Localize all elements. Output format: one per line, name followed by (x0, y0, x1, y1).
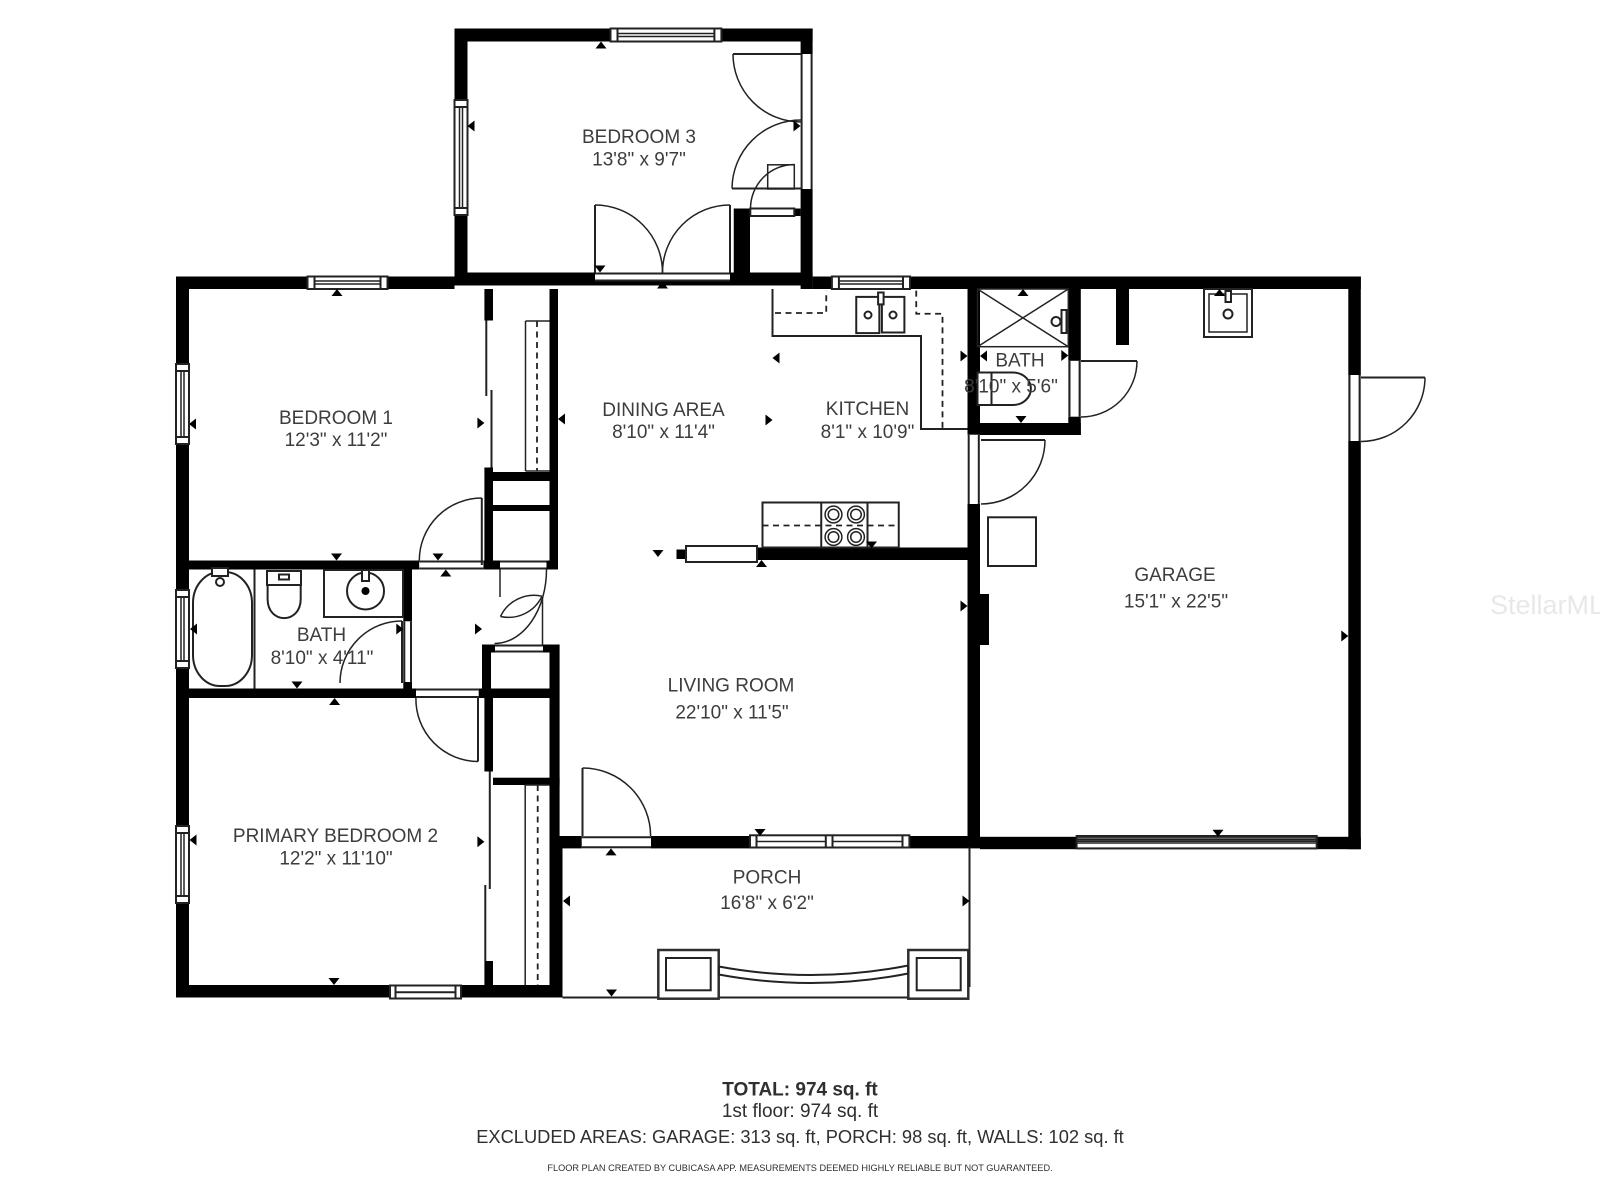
svg-text:FLOOR PLAN CREATED BY CUBICASA: FLOOR PLAN CREATED BY CUBICASA APP. MEAS… (547, 1163, 1052, 1173)
svg-text:TOTAL: 974 sq. ft: TOTAL: 974 sq. ft (722, 1080, 878, 1101)
svg-text:BATH: BATH (995, 351, 1044, 372)
svg-text:22'10" x 11'5": 22'10" x 11'5" (675, 703, 788, 724)
svg-text:8'10" x 11'4": 8'10" x 11'4" (612, 422, 715, 443)
svg-text:LIVING ROOM: LIVING ROOM (668, 676, 795, 697)
svg-text:KITCHEN: KITCHEN (826, 399, 909, 420)
svg-text:12'3" x 11'2": 12'3" x 11'2" (285, 430, 388, 451)
svg-text:StellarMLS: StellarMLS (1490, 590, 1600, 620)
svg-text:EXCLUDED AREAS: GARAGE: 313 sq: EXCLUDED AREAS: GARAGE: 313 sq. ft, PORC… (476, 1126, 1124, 1147)
svg-text:1st floor: 974 sq. ft: 1st floor: 974 sq. ft (722, 1101, 879, 1122)
svg-text:GARAGE: GARAGE (1134, 565, 1215, 586)
svg-text:12'2" x 11'10": 12'2" x 11'10" (279, 849, 392, 870)
svg-text:DINING AREA: DINING AREA (602, 400, 725, 421)
svg-text:15'1" x 22'5": 15'1" x 22'5" (1124, 592, 1228, 613)
svg-text:PRIMARY BEDROOM 2: PRIMARY BEDROOM 2 (233, 826, 438, 847)
svg-text:PORCH: PORCH (733, 868, 802, 889)
svg-text:BATH: BATH (297, 625, 346, 646)
svg-text:BEDROOM 1: BEDROOM 1 (279, 408, 393, 429)
svg-text:13'8" x 9'7": 13'8" x 9'7" (592, 150, 686, 171)
svg-text:16'8" x 6'2": 16'8" x 6'2" (720, 893, 814, 914)
svg-text:8'10" x 5'6": 8'10" x 5'6" (964, 377, 1058, 398)
svg-text:8'1" x 10'9": 8'1" x 10'9" (821, 422, 915, 443)
svg-text:8'10" x 4'11": 8'10" x 4'11" (271, 648, 374, 669)
svg-text:BEDROOM 3: BEDROOM 3 (582, 127, 696, 148)
